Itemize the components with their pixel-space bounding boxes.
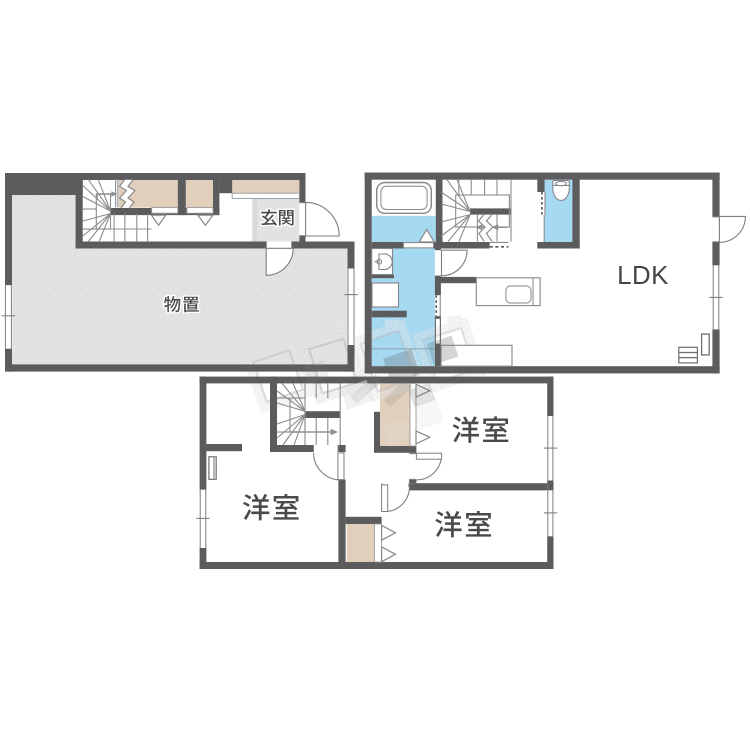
svg-text:LDK: LDK [617,262,669,290]
